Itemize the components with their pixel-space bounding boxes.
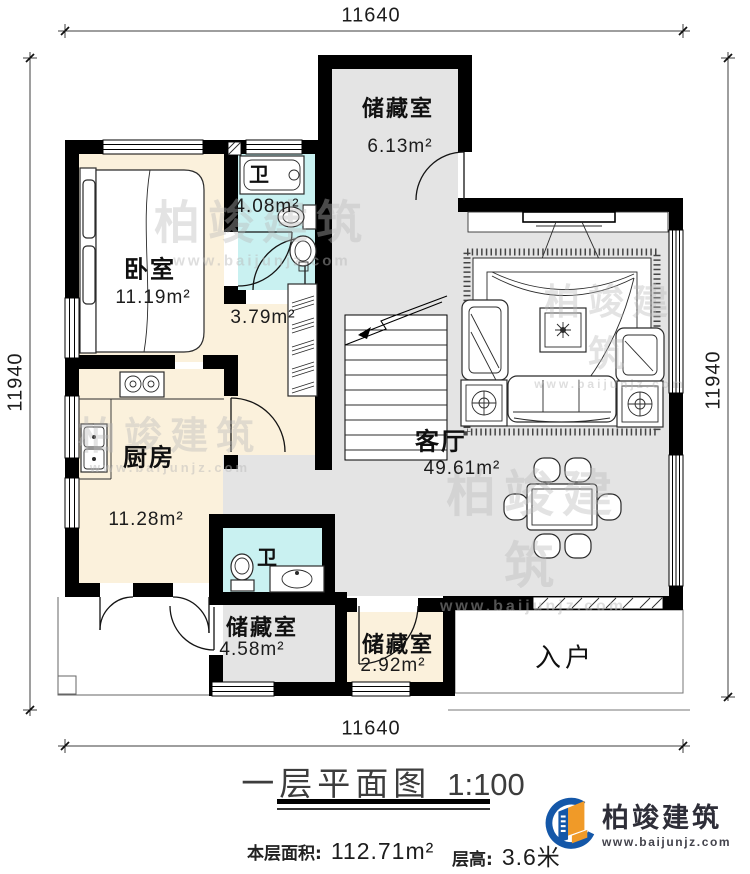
title-scale: 1:100 bbox=[447, 767, 525, 803]
dim-bottom-label: 11640 bbox=[341, 718, 400, 741]
dim-left-label: 11940 bbox=[5, 352, 28, 411]
door-storage-left bbox=[170, 606, 214, 650]
dim-right-label: 11940 bbox=[703, 350, 726, 409]
end-table-left bbox=[461, 380, 507, 426]
door-porch-1 bbox=[100, 597, 133, 630]
room-label-bedroom: 卧室 bbox=[124, 250, 176, 285]
title-underline-thick bbox=[277, 799, 490, 804]
closet bbox=[288, 284, 317, 396]
window-bath-north bbox=[246, 140, 302, 154]
room-label-living: 客厅 bbox=[415, 422, 467, 457]
room-area-storage-right: 2.92m² bbox=[360, 655, 425, 677]
room-label-entry: 入户 bbox=[535, 638, 595, 675]
kitchen-sink bbox=[81, 424, 107, 472]
armchair-right bbox=[616, 328, 664, 382]
window-south-1 bbox=[212, 682, 274, 696]
room-area-storage-left: 4.58m² bbox=[219, 639, 284, 661]
company-logo-icon bbox=[543, 797, 595, 857]
sofa-main bbox=[508, 376, 616, 422]
dim-top-label: 11640 bbox=[341, 5, 400, 28]
room-label-kitchen: 厨房 bbox=[123, 438, 175, 473]
room-label-storage-top: 储藏室 bbox=[362, 91, 434, 123]
room-area-bedroom: 11.19m² bbox=[115, 287, 190, 309]
window-east-upper bbox=[669, 230, 683, 393]
title-underline-thin bbox=[277, 808, 490, 810]
dining-table bbox=[527, 484, 597, 530]
room-label-bath-bottom: 卫 bbox=[257, 542, 279, 571]
armchair-left bbox=[462, 300, 508, 386]
stove bbox=[120, 372, 164, 397]
window-bedroom-north bbox=[103, 140, 203, 154]
floor-plan-drawing bbox=[0, 0, 750, 874]
room-label-bath-top: 卫 bbox=[249, 159, 271, 188]
kitchen-floor bbox=[79, 369, 224, 583]
room-area-living: 49.61m² bbox=[424, 458, 501, 480]
window-west-kitchen-2 bbox=[65, 478, 79, 528]
floor-plan-page: 柏竣建筑 www.baijunjz.com 柏竣建筑 www.baijunjz.… bbox=[0, 0, 750, 874]
window-west-kitchen-1 bbox=[65, 396, 79, 458]
window-south-2 bbox=[352, 682, 410, 696]
end-table-right bbox=[617, 381, 663, 427]
room-area-bath-top: 4.08m² bbox=[234, 196, 299, 218]
coffee-table bbox=[540, 308, 586, 352]
floor-area-info: 本层面积: 112.71m² bbox=[247, 838, 434, 865]
drawing-title: 一层平面图 1:100 bbox=[241, 757, 525, 805]
floor-height-label: 层高: bbox=[452, 845, 493, 870]
room-area-hall: 3.79m² bbox=[230, 307, 295, 329]
window-east-lower bbox=[669, 455, 683, 586]
toilet-bottom bbox=[231, 554, 254, 591]
room-area-storage-top: 6.13m² bbox=[367, 136, 432, 158]
floor-area-value: 112.71m² bbox=[331, 838, 434, 865]
window-west-bedroom bbox=[65, 298, 79, 358]
room-area-kitchen: 11.28m² bbox=[108, 509, 183, 531]
tv bbox=[523, 212, 615, 222]
room-label-storage-left: 储藏室 bbox=[226, 610, 298, 642]
floor-area-label: 本层面积: bbox=[247, 839, 322, 864]
company-logo-url: www.baijunjz.com bbox=[602, 836, 731, 849]
company-logo: 柏竣建筑 www.baijunjz.com bbox=[543, 797, 731, 857]
dim-bottom-line bbox=[58, 739, 690, 753]
duct-hatch bbox=[228, 142, 241, 155]
entry-sliding-door bbox=[533, 597, 663, 609]
company-logo-name: 柏竣建筑 bbox=[602, 805, 731, 833]
title-text: 一层平面图 bbox=[241, 757, 431, 805]
door-porch-2 bbox=[173, 597, 209, 633]
plant bbox=[560, 327, 566, 333]
